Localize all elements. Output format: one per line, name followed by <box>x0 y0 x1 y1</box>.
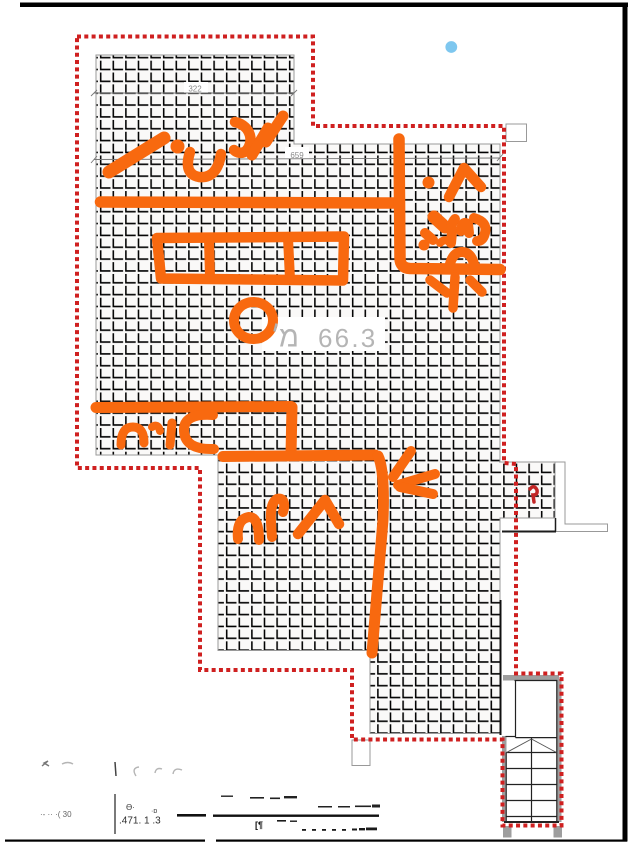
svg-text:·- ·· ·( 30: ·- ·· ·( 30 <box>40 810 72 819</box>
svg-text:659: 659 <box>290 151 304 160</box>
svg-text:[¶: [¶ <box>255 820 263 830</box>
svg-text:Ɵ·: Ɵ· <box>126 803 135 812</box>
svg-text:·ɒ: ·ɒ <box>151 808 157 815</box>
svg-text:.471. 1 .3: .471. 1 .3 <box>119 816 161 827</box>
svg-text:322: 322 <box>188 85 202 94</box>
svg-text:66.3: 66.3 <box>318 323 377 353</box>
svg-text:מ: מ <box>279 322 299 354</box>
